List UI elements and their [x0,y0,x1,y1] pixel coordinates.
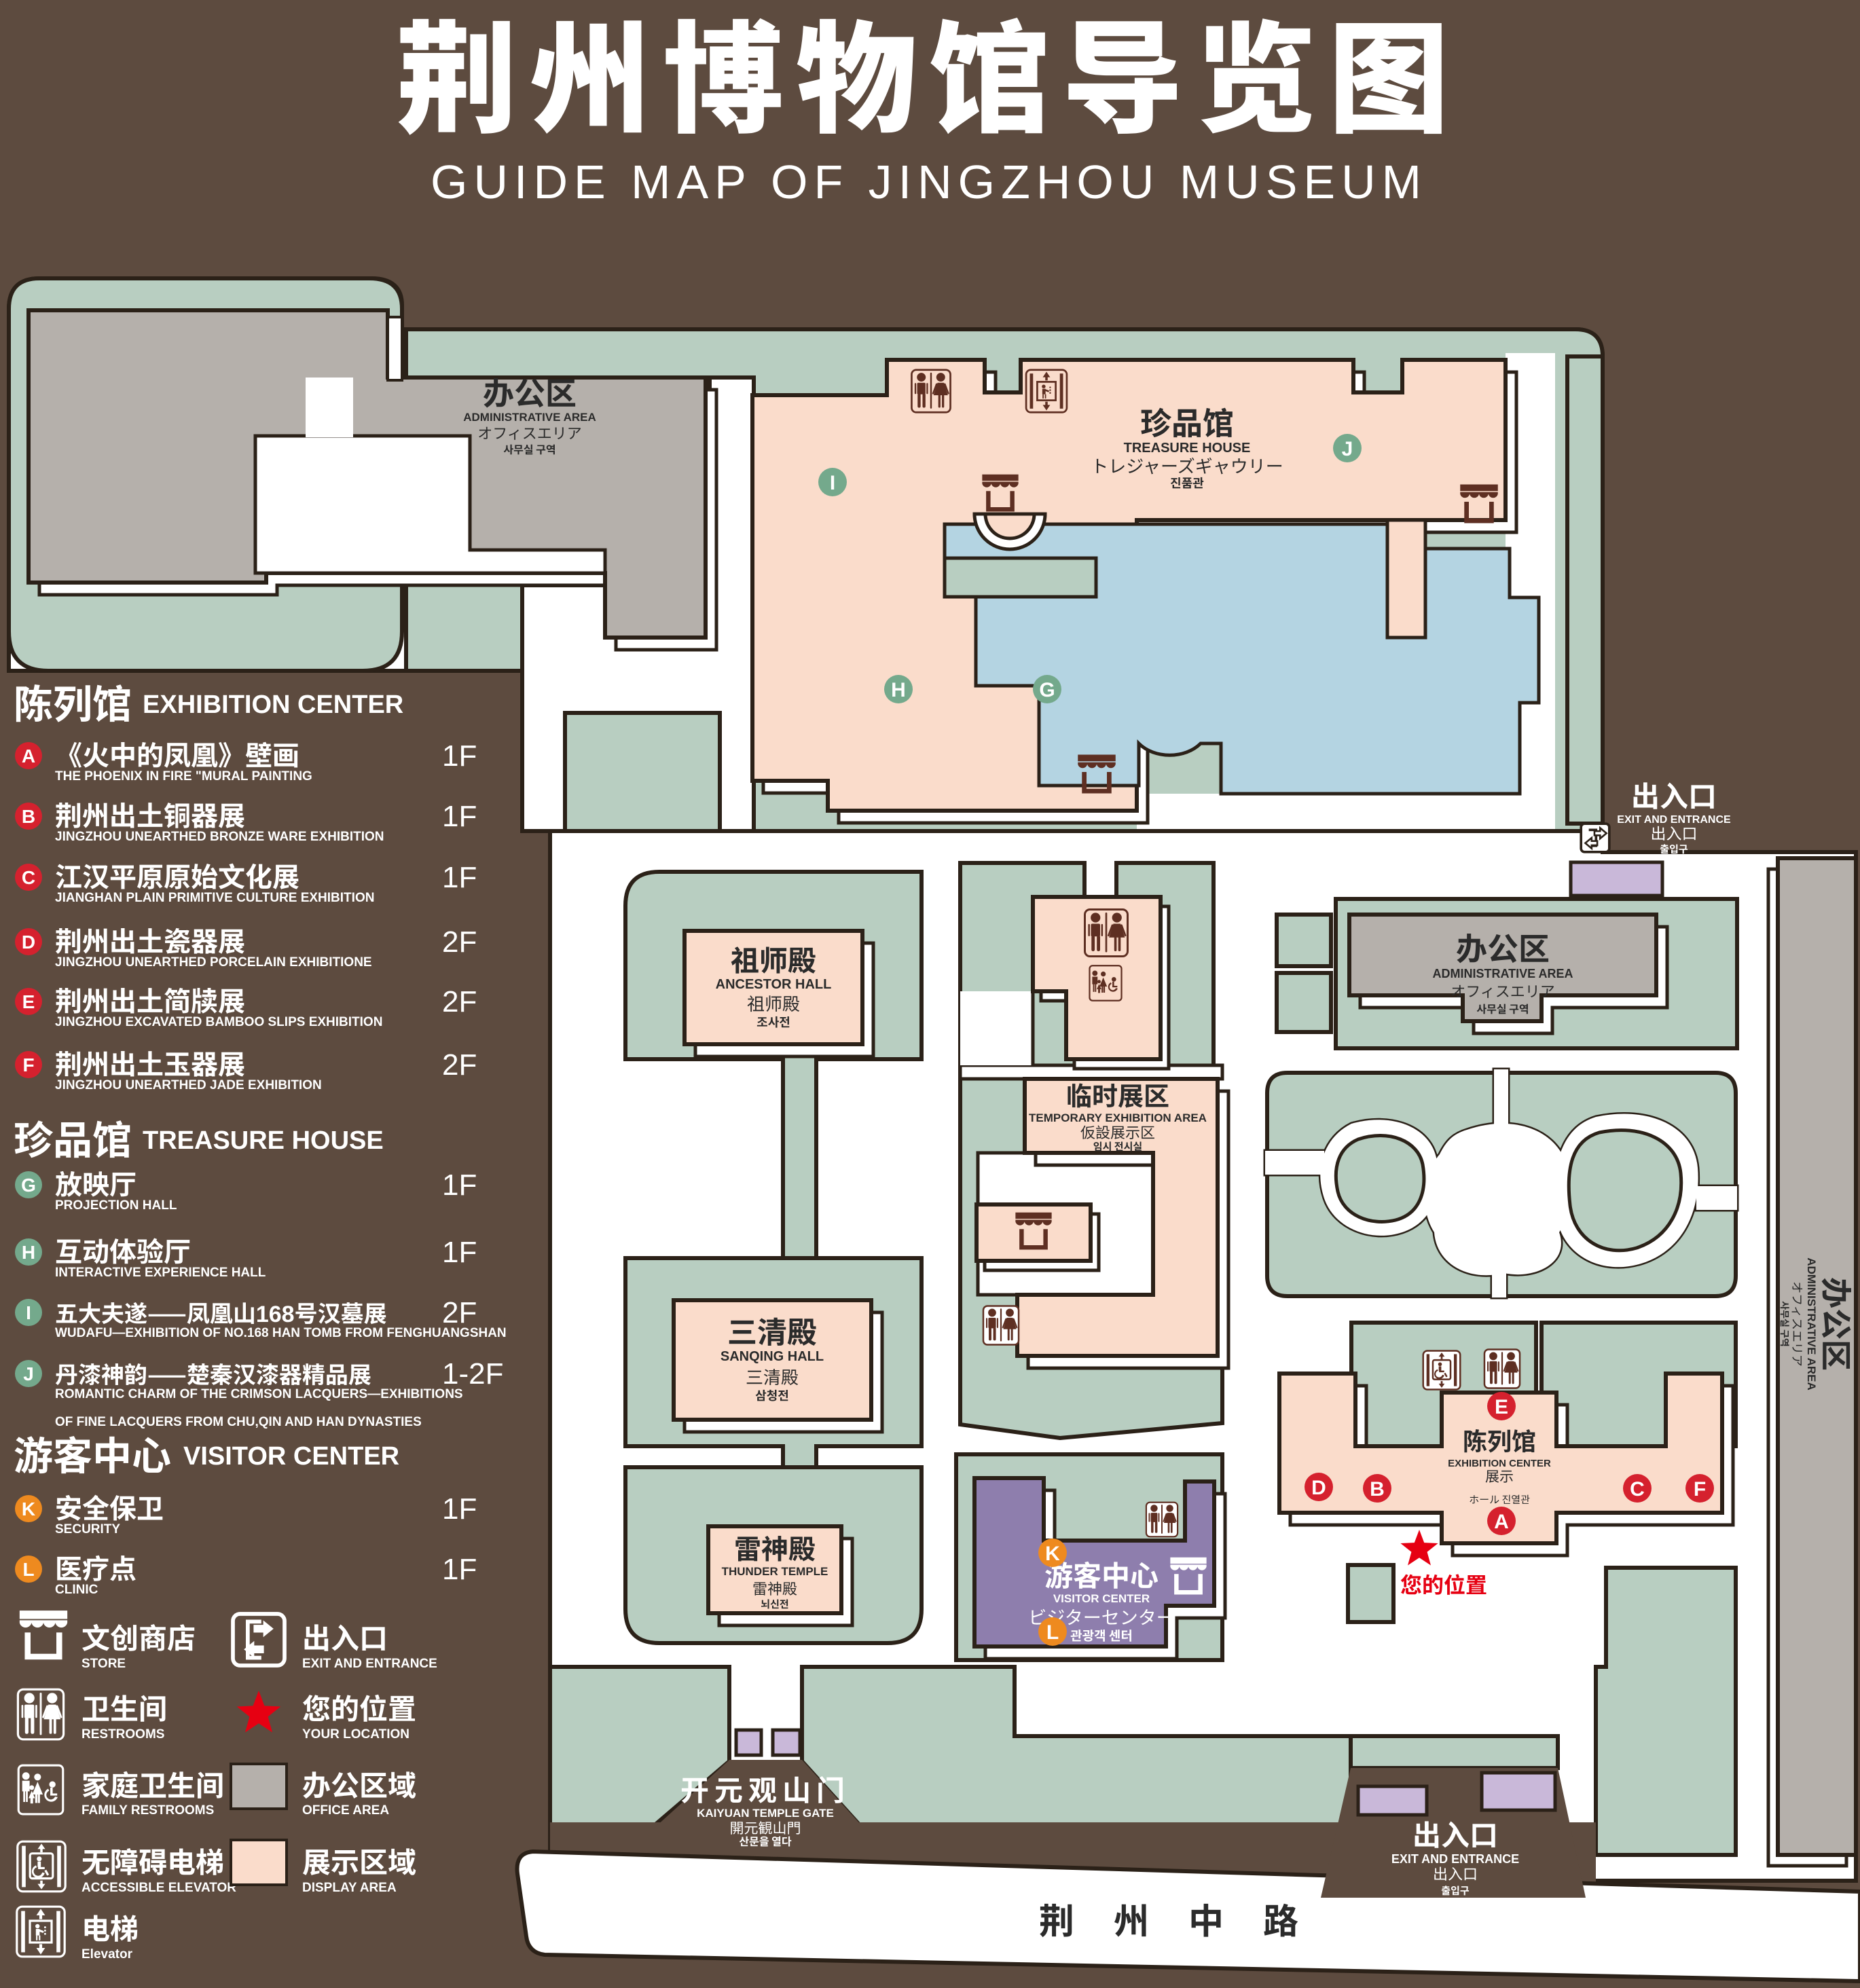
svg-text:STORE: STORE [81,1657,126,1671]
svg-text:TREASURE HOUSE: TREASURE HOUSE [143,1126,384,1155]
svg-text:E: E [22,991,35,1012]
svg-text:1F: 1F [442,739,477,773]
svg-text:B: B [22,806,35,827]
svg-text:游客中心: 游客中心 [14,1424,171,1481]
svg-text:您的位置: 您的位置 [302,1687,416,1728]
svg-text:ROMANTIC CHARM OF THE CRIMSON: ROMANTIC CHARM OF THE CRIMSON LACQUERS—E… [55,1387,463,1401]
svg-text:OFFICE AREA: OFFICE AREA [302,1803,389,1818]
svg-text:祖师殿: 祖师殿 [731,938,816,980]
svg-text:办公区: 办公区 [1456,925,1550,970]
svg-text:조사전: 조사전 [756,1013,790,1031]
svg-text:雷神殿: 雷神殿 [752,1577,797,1599]
svg-text:H: H [891,679,906,701]
svg-text:三清殿: 三清殿 [727,1308,817,1352]
svg-text:《火中的凤凰》壁画: 《火中的凤凰》壁画 [55,734,299,773]
svg-text:JINGZHOU EXCAVATED BAMBOO SLIP: JINGZHOU EXCAVATED BAMBOO SLIPS EXHIBITI… [55,1015,382,1029]
svg-text:THE PHOENIX IN FIRE "MURAL PAI: THE PHOENIX IN FIRE "MURAL PAINTING [55,769,312,784]
svg-text:电梯: 电梯 [81,1907,139,1948]
svg-text:荆州博物馆导览图: 荆州博物馆导览图 [397,0,1461,158]
svg-text:사무실 구역: 사무실 구역 [1476,1000,1529,1016]
svg-text:Elevator: Elevator [81,1947,133,1962]
svg-text:L: L [1046,1621,1059,1644]
svg-text:F: F [1694,1478,1706,1501]
svg-text:출입구: 출입구 [1660,842,1688,856]
svg-text:H: H [22,1242,35,1263]
svg-text:荆州中路: 荆州中路 [1039,1893,1338,1944]
svg-text:家庭卫生间: 家庭卫生间 [81,1763,224,1805]
svg-text:INTERACTIVE EXPERIENCE HALL: INTERACTIVE EXPERIENCE HALL [55,1266,266,1280]
svg-text:2F: 2F [442,925,477,959]
svg-text:I: I [26,1302,31,1323]
svg-text:산문을 열다: 산문을 열다 [739,1833,792,1849]
svg-text:无障碍电梯: 无障碍电梯 [81,1840,224,1881]
svg-text:진품관: 진품관 [1170,474,1204,492]
svg-text:SANQING HALL: SANQING HALL [721,1349,824,1364]
svg-text:オフィスエリア: オフィスエリア [1451,980,1555,1001]
svg-text:PROJECTION HALL: PROJECTION HALL [55,1198,177,1213]
svg-text:荆州出土铜器展: 荆州出土铜器展 [55,794,245,834]
svg-text:B: B [1370,1478,1385,1501]
svg-text:JINGZHOU UNEARTHED BRONZE WARE: JINGZHOU UNEARTHED BRONZE WARE EXHIBITIO… [55,830,384,844]
svg-text:A: A [22,745,35,767]
svg-text:JIANGHAN PLAIN PRIMITIVE CULTU: JIANGHAN PLAIN PRIMITIVE CULTURE EXHIBIT… [55,891,374,905]
svg-text:D: D [1311,1477,1326,1499]
svg-text:G: G [21,1175,36,1196]
svg-text:삼청전: 삼청전 [755,1386,789,1404]
svg-text:I: I [830,472,835,494]
svg-text:1F: 1F [442,1492,477,1526]
svg-text:SECURITY: SECURITY [55,1522,120,1536]
svg-text:L: L [22,1559,34,1580]
svg-text:雷神殿: 雷神殿 [734,1528,816,1567]
svg-text:展示区域: 展示区域 [302,1840,416,1881]
svg-text:THUNDER TEMPLE: THUNDER TEMPLE [722,1565,828,1578]
svg-text:您的位置: 您的位置 [1400,1568,1487,1600]
svg-text:ANCESTOR HALL: ANCESTOR HALL [716,977,832,992]
svg-text:D: D [22,932,35,953]
svg-text:互动体验厅: 互动体验厅 [55,1230,191,1270]
svg-text:A: A [1494,1511,1509,1533]
svg-text:五大夫遂——凤凰山168号汉墓展: 五大夫遂——凤凰山168号汉墓展 [55,1295,387,1329]
svg-text:ADMINISTRATIVE AREA: ADMINISTRATIVE AREA [1433,967,1573,980]
svg-text:J: J [1342,438,1353,460]
svg-text:祖师殿: 祖师殿 [747,991,800,1016]
svg-text:J: J [23,1363,34,1384]
svg-text:珍品馆: 珍品馆 [14,1109,132,1166]
svg-text:出入口: 出入口 [1631,774,1717,815]
svg-text:관광객 센터: 관광객 센터 [1070,1626,1133,1644]
svg-text:C: C [1630,1478,1645,1501]
svg-text:JINGZHOU UNEARTHED JADE EXHIBI: JINGZHOU UNEARTHED JADE EXHIBITION [55,1078,322,1092]
svg-text:G: G [1039,679,1055,701]
svg-text:WUDAFU—EXHIBITION OF NO.168 HA: WUDAFU—EXHIBITION OF NO.168 HAN TOMB FRO… [55,1326,507,1340]
svg-text:F: F [22,1054,34,1075]
svg-text:K: K [22,1498,35,1520]
svg-text:FAMILY RESTROOMS: FAMILY RESTROOMS [81,1803,214,1818]
svg-text:出入口: 出入口 [1433,1862,1478,1884]
svg-text:2F: 2F [442,1296,477,1329]
svg-text:1F: 1F [442,1236,477,1269]
svg-text:办公区: 办公区 [483,369,577,414]
svg-text:临时展区: 临时展区 [1066,1075,1169,1113]
svg-text:RESTROOMS: RESTROOMS [81,1727,164,1742]
svg-text:1F: 1F [442,861,477,894]
svg-text:珍品馆: 珍品馆 [1140,399,1234,444]
svg-text:放映厅: 放映厅 [55,1163,136,1202]
svg-text:YOUR LOCATION: YOUR LOCATION [302,1727,409,1742]
svg-text:임시 전시실: 임시 전시실 [1093,1139,1142,1154]
svg-text:出入口: 出入口 [1412,1813,1498,1854]
svg-text:文创商店: 文创商店 [81,1616,196,1657]
svg-text:사무실 구역: 사무실 구역 [1778,1301,1791,1347]
svg-text:뇌신전: 뇌신전 [761,1597,788,1611]
svg-text:安全保卫: 安全保卫 [55,1487,164,1526]
svg-text:荆州出土瓷器展: 荆州出土瓷器展 [55,920,245,959]
svg-text:荆州出土简牍展: 荆州出土简牍展 [55,980,245,1019]
svg-text:陈列馆: 陈列馆 [1463,1422,1536,1458]
svg-text:1F: 1F [442,1168,477,1202]
svg-text:ホール 진열관: ホール 진열관 [1469,1492,1530,1507]
svg-text:陈列馆: 陈列馆 [14,673,132,730]
svg-text:办公区: 办公区 [1815,1277,1860,1371]
svg-text:JINGZHOU UNEARTHED PORCELAIN E: JINGZHOU UNEARTHED PORCELAIN EXHIBITIONE [55,955,372,970]
svg-text:출입구: 출입구 [1441,1883,1470,1898]
svg-text:2F: 2F [442,1048,477,1082]
svg-text:VISITOR CENTER: VISITOR CENTER [183,1442,399,1471]
svg-text:办公区域: 办公区域 [302,1763,416,1805]
svg-text:卫生间: 卫生间 [81,1687,167,1728]
svg-text:三清殿: 三清殿 [746,1364,799,1389]
svg-text:开元观山门: 开元观山门 [680,1768,850,1809]
svg-text:EXIT AND ENTRANCE: EXIT AND ENTRANCE [302,1657,437,1671]
svg-text:ACCESSIBLE ELEVATOR: ACCESSIBLE ELEVATOR [81,1881,236,1895]
svg-text:DISPLAY AREA: DISPLAY AREA [302,1881,397,1895]
svg-text:K: K [1045,1543,1060,1565]
svg-text:C: C [22,867,35,888]
svg-text:丹漆神韵——楚秦汉漆器精品展: 丹漆神韵——楚秦汉漆器精品展 [55,1357,371,1390]
svg-text:1-2F: 1-2F [442,1357,503,1391]
svg-text:CLINIC: CLINIC [55,1583,98,1597]
svg-text:EXHIBITION CENTER: EXHIBITION CENTER [143,691,403,719]
svg-text:出入口: 出入口 [1651,821,1698,844]
svg-text:1F: 1F [442,1553,477,1586]
svg-text:GUIDE MAP OF JINGZHOU MUSEUM: GUIDE MAP OF JINGZHOU MUSEUM [431,155,1427,208]
svg-text:E: E [1495,1396,1508,1418]
svg-text:사무실 구역: 사무실 구역 [503,441,555,457]
svg-text:展示: 展示 [1485,1466,1514,1486]
svg-text:2F: 2F [442,985,477,1018]
svg-text:出入口: 出入口 [302,1616,388,1657]
svg-text:医疗点: 医疗点 [55,1547,136,1587]
svg-text:荆州出土玉器展: 荆州出土玉器展 [55,1043,245,1082]
svg-text:1F: 1F [442,800,477,833]
svg-text:江汉平原原始文化展: 江汉平原原始文化展 [55,855,299,895]
